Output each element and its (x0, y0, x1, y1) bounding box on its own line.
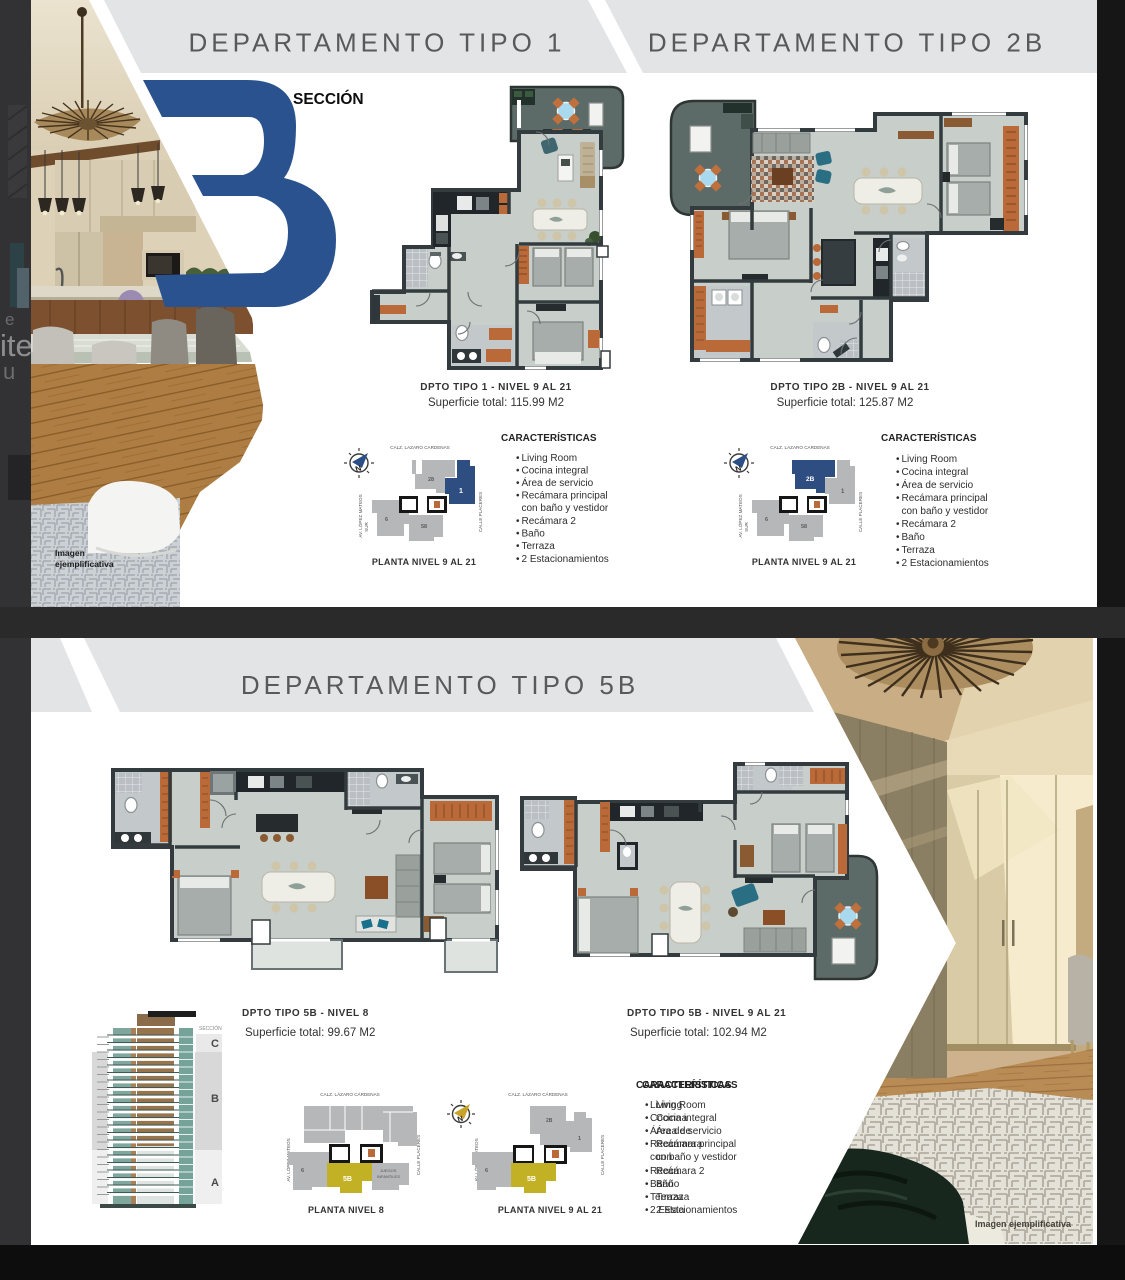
svg-text:•: • (896, 493, 900, 504)
svg-text:•: • (896, 545, 900, 556)
svg-text:SUR: SUR (364, 521, 369, 531)
svg-text:e: e (5, 310, 14, 329)
svg-text:B: B (211, 1093, 219, 1105)
svg-text:ite: ite (0, 328, 33, 363)
svg-text:A: A (211, 1177, 219, 1189)
svg-text:•: • (516, 541, 520, 552)
svg-text:SUR: SUR (744, 521, 749, 531)
svg-text:JUEGOS: JUEGOS (380, 1168, 397, 1173)
svg-text:PLANTA NIVEL 9 AL 21: PLANTA NIVEL 9 AL 21 (372, 557, 476, 567)
svg-text:•: • (645, 1205, 649, 1216)
svg-text:•: • (516, 516, 520, 527)
svg-text:Área de servicio: Área de servicio (522, 476, 594, 489)
svg-text:•: • (896, 467, 900, 478)
svg-text:SECCIÓN: SECCIÓN (293, 90, 364, 108)
svg-text:Superficie total: 99.67 M2: Superficie total: 99.67 M2 (245, 1027, 375, 1039)
svg-text:Cocina integral: Cocina integral (522, 466, 589, 477)
svg-text:CARACTERÍSTICAS: CARACTERÍSTICAS (881, 431, 977, 444)
svg-text:2B: 2B (806, 476, 815, 483)
svg-text:Recámara 2: Recámara 2 (902, 519, 957, 530)
svg-text:5B: 5B (343, 1176, 352, 1183)
svg-text:•: • (896, 454, 900, 465)
svg-text:DPTO TIPO 5B - NIVEL 9 A: DPTO TIPO 5B - NIVEL 9 AL 21 (627, 1008, 786, 1019)
svg-text:CALLE PLACERES: CALLE PLACERES (600, 1135, 605, 1175)
svg-text:•: • (896, 480, 900, 491)
svg-text:6: 6 (765, 517, 768, 523)
svg-text:CALZ. LÁZARO CÁRDENAS: CALZ. LÁZARO CÁRDENAS (320, 1091, 379, 1097)
svg-text:CALZ. LAZARO CARDENAS: CALZ. LAZARO CARDENAS (770, 445, 829, 450)
svg-text:PLANTA NIVEL 8: PLANTA NIVEL 8 (308, 1205, 384, 1215)
svg-text:•: • (645, 1100, 649, 1111)
svg-text:6: 6 (485, 1168, 488, 1174)
svg-text:Cocina: Cocina (656, 1113, 688, 1124)
svg-text:Living Room: Living Room (522, 453, 578, 464)
svg-text:Recá: Recá (656, 1166, 680, 1177)
svg-text:DPTO TIPO 2B - NIVEL 9 A: DPTO TIPO 2B - NIVEL 9 AL 21 (770, 382, 929, 393)
svg-text:SECCIÓN: SECCIÓN (199, 1025, 222, 1032)
svg-text:CARACTERÍSTICAS: CARACTERÍSTICAS (501, 431, 597, 444)
svg-text:PLANTA NIVEL 9 AL 21: PLANTA NIVEL 9 AL 21 (752, 557, 856, 567)
svg-text:•: • (896, 558, 900, 569)
svg-text:5B: 5B (527, 1176, 536, 1183)
svg-text:AV. LÓPEZ MATEOS: AV. LÓPEZ MATEOS (737, 494, 743, 537)
svg-text:58: 58 (421, 524, 427, 530)
svg-text:Living: Living (656, 1100, 682, 1111)
svg-text:•: • (896, 532, 900, 543)
svg-text:INFANTILES: INFANTILES (377, 1174, 400, 1179)
svg-text:Cocina integral: Cocina integral (902, 467, 969, 478)
svg-text:CALLE PLACERES: CALLE PLACERES (858, 492, 863, 532)
svg-text:CALZ. LÁZARO CÁRDENAS: CALZ. LÁZARO CÁRDENAS (508, 1091, 567, 1097)
svg-text:•: • (516, 478, 520, 489)
svg-text:DPTO TIPO 1 - NIVEL 9 AL: DPTO TIPO 1 - NIVEL 9 AL 21 (420, 382, 572, 393)
svg-text:CARACTERÍSTICAS: CARACTERÍSTICAS (642, 1078, 738, 1091)
svg-text:Recámara principal: Recámara principal (522, 491, 608, 502)
svg-text:6: 6 (385, 517, 388, 523)
svg-text:2B: 2B (546, 1118, 553, 1124)
svg-text:DPTO TIPO 5B - NIVEL 8: DPTO TIPO 5B - NIVEL 8 (242, 1008, 369, 1019)
svg-text:con baño y vestidor: con baño y vestidor (522, 503, 609, 514)
svg-text:DEPARTAMENTO TIPO 5B: DEPARTAMENTO TIPO 5B (241, 670, 639, 700)
svg-text:ejemplificativa: ejemplificativa (55, 559, 114, 569)
svg-text:CALLE PLACERES: CALLE PLACERES (478, 492, 483, 532)
svg-text:Área de servicio: Área de servicio (902, 478, 974, 491)
svg-text:2 Estacionamientos: 2 Estacionamientos (522, 554, 609, 565)
svg-text:•: • (645, 1192, 649, 1203)
svg-text:Área de: Área de (656, 1124, 691, 1137)
svg-text:•: • (896, 519, 900, 530)
svg-text:58: 58 (801, 524, 807, 530)
svg-text:CALZ. LAZARO CARDENAS: CALZ. LAZARO CARDENAS (390, 445, 449, 450)
svg-text:•: • (645, 1179, 649, 1190)
svg-text:Superficie total: 115.99 M2: Superficie total: 115.99 M2 (428, 397, 564, 409)
svg-text:Recámara 2: Recámara 2 (522, 516, 577, 527)
svg-text:Recámara: Recámara (656, 1139, 703, 1150)
svg-text:Terraza: Terraza (522, 541, 556, 552)
svg-text:•: • (645, 1166, 649, 1177)
svg-text:Imagen ejemplificativa: Imagen ejemplificativa (975, 1219, 1072, 1229)
svg-text:Terraza: Terraza (656, 1192, 690, 1203)
svg-text:•: • (516, 529, 520, 540)
svg-text:28: 28 (428, 477, 434, 483)
svg-text:AV. LÓPEZ MATEOS: AV. LÓPEZ MATEOS (357, 494, 363, 537)
svg-text:DEPARTAMENTO TIPO 1: DEPARTAMENTO TIPO 1 (189, 28, 566, 58)
svg-text:•: • (645, 1113, 649, 1124)
svg-text:•: • (516, 466, 520, 477)
svg-text:Imagen: Imagen (55, 548, 85, 558)
svg-text:Baño: Baño (902, 532, 926, 543)
svg-text:Living Room: Living Room (902, 454, 958, 465)
svg-text:•: • (516, 491, 520, 502)
svg-text:2 Estacionamientos: 2 Estacionamientos (902, 558, 989, 569)
svg-text:Terraza: Terraza (902, 545, 936, 556)
svg-text:con: con (656, 1152, 672, 1163)
svg-text:u: u (3, 359, 15, 384)
svg-text:1: 1 (459, 488, 463, 495)
svg-text:Baño: Baño (656, 1179, 680, 1190)
svg-text:Superficie total: 125.87 M2: Superficie total: 125.87 M2 (777, 397, 914, 409)
svg-text:•: • (516, 554, 520, 565)
svg-text:•: • (516, 453, 520, 464)
svg-text:PLANTA NIVEL 9 AL 21: PLANTA NIVEL 9 AL 21 (498, 1205, 602, 1215)
svg-text:•: • (645, 1139, 649, 1150)
svg-text:DEPARTAMENTO TIPO 2B: DEPARTAMENTO TIPO 2B (648, 28, 1046, 58)
svg-text:2 Esta: 2 Esta (656, 1205, 685, 1216)
svg-text:•: • (645, 1126, 649, 1137)
svg-text:Baño: Baño (522, 529, 546, 540)
svg-text:1: 1 (578, 1136, 581, 1142)
svg-text:6: 6 (301, 1168, 304, 1174)
svg-text:Recámara principal: Recámara principal (902, 493, 988, 504)
svg-text:con baño y vestidor: con baño y vestidor (902, 506, 989, 517)
svg-text:C: C (211, 1038, 219, 1050)
svg-text:Superficie total: 102.94 M2: Superficie total: 102.94 M2 (630, 1027, 767, 1039)
